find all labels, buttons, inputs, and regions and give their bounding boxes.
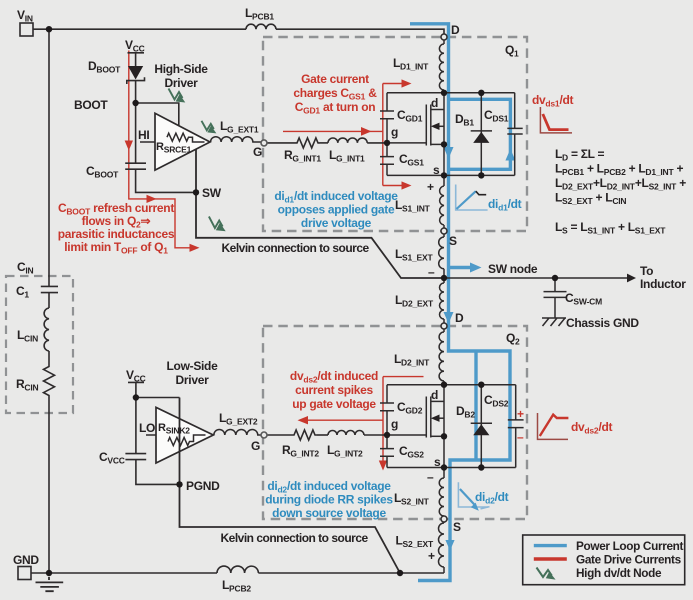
svg-text:Low-Side: Low-Side: [167, 359, 219, 373]
svg-text:Driver: Driver: [176, 373, 210, 387]
svg-text:D: D: [451, 23, 460, 37]
svg-text:Inductor: Inductor: [640, 277, 686, 291]
svg-text:S: S: [453, 520, 461, 534]
svg-text:s: s: [434, 455, 441, 469]
svg-text:current spikes: current spikes: [295, 383, 373, 397]
svg-text:limit min TOFF of Q1: limit min TOFF of Q1: [64, 240, 168, 256]
svg-text:up gate voltage: up gate voltage: [292, 397, 376, 411]
svg-text:+: +: [428, 549, 435, 563]
svg-text:G: G: [253, 145, 262, 159]
svg-text:–: –: [427, 470, 434, 484]
svg-text:PGND: PGND: [186, 479, 220, 493]
svg-text:d: d: [431, 388, 438, 402]
svg-text:Kelvin connection to source: Kelvin connection to source: [222, 241, 370, 255]
svg-text:parasitic inductances: parasitic inductances: [58, 227, 175, 241]
svg-text:Gate Drive Currents: Gate Drive Currents: [576, 553, 682, 567]
svg-text:opposes applied gate: opposes applied gate: [278, 203, 395, 217]
svg-text:HI: HI: [138, 128, 149, 142]
svg-text:–: –: [428, 265, 435, 279]
svg-text:Driver: Driver: [165, 76, 199, 90]
svg-text:drive voltage: drive voltage: [301, 216, 372, 230]
svg-text:LO: LO: [139, 421, 155, 435]
svg-text:during diode RR spikes: during diode RR spikes: [265, 493, 393, 507]
svg-text:+: +: [517, 407, 524, 421]
svg-text:High-Side: High-Side: [154, 62, 208, 76]
svg-text:SW: SW: [202, 186, 222, 200]
svg-text:–: –: [517, 430, 524, 444]
svg-text:Chassis GND: Chassis GND: [566, 316, 639, 330]
svg-text:High dv/dt Node: High dv/dt Node: [576, 566, 662, 580]
svg-text:G: G: [251, 439, 260, 453]
svg-text:d: d: [431, 96, 438, 110]
svg-text:down source voltage: down source voltage: [272, 506, 386, 520]
svg-text:Power Loop Current: Power Loop Current: [576, 539, 684, 553]
svg-text:SW node: SW node: [488, 262, 538, 276]
svg-text:s: s: [433, 163, 440, 177]
svg-text:+: +: [427, 180, 434, 194]
svg-text:D: D: [455, 311, 464, 325]
svg-text:Gate current: Gate current: [301, 72, 369, 86]
svg-text:Kelvin connection to source: Kelvin connection to source: [221, 531, 369, 545]
svg-text:S: S: [449, 234, 457, 248]
svg-text:To: To: [640, 264, 653, 278]
svg-text:g: g: [391, 417, 398, 431]
svg-text:BOOT: BOOT: [74, 98, 108, 112]
svg-text:GND: GND: [13, 553, 39, 567]
svg-text:g: g: [391, 125, 398, 139]
